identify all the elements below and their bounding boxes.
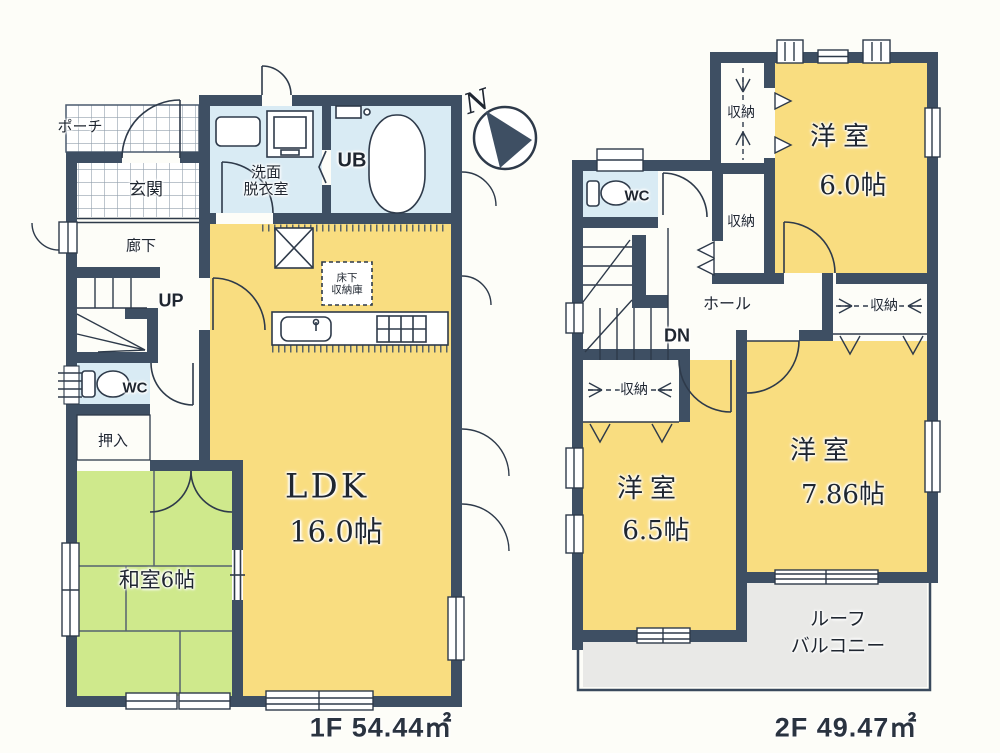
bedroom2-name-label: 洋室	[790, 437, 856, 467]
ldk-size-label: 16.0帖	[289, 515, 383, 548]
bedroom2-size-label: 7.86帖	[801, 481, 885, 511]
bedroom1-name-label: 洋室	[810, 123, 876, 153]
oshiire-label: 押入	[98, 432, 128, 449]
stairs-up-label: UP	[158, 291, 183, 312]
japanese-room-label: 和室6帖	[119, 568, 195, 592]
toilet-2f-label: WC	[625, 187, 650, 204]
washroom-label-line2: 脱衣室	[243, 181, 288, 198]
entrance-label: 玄関	[129, 181, 163, 201]
storage-north-upper-label: 収納	[727, 105, 755, 121]
roof-balcony-line1: ルーフ	[791, 606, 886, 633]
underfloor-storage-line1: 床下	[331, 272, 363, 284]
washroom-label: 洗面 脱衣室	[243, 164, 288, 199]
unit-bath-label: UB	[338, 150, 367, 173]
floor1-area-label: 1F 54.44㎡	[310, 712, 453, 743]
storage-bedroom2-label: 収納	[870, 298, 898, 314]
floor2-area-label: 2F 49.47㎡	[775, 712, 918, 743]
corridor-label: 廊下	[126, 237, 156, 254]
storage-bedroom3-label: 収納	[620, 382, 648, 398]
washroom-label-line1: 洗面	[243, 164, 288, 181]
ldk-name-label: LDK	[285, 467, 369, 506]
roof-balcony-line2: バルコニー	[791, 633, 886, 660]
porch-label: ポーチ	[57, 118, 102, 135]
floorplan-canvas: N ポーチ 玄関 廊下 UP WC 押入 和室6帖 洗面 脱衣室 UB 床下 収…	[0, 0, 1000, 753]
bedroom1-size-label: 6.0帖	[819, 172, 886, 202]
storage-north-lower-label: 収納	[727, 214, 755, 230]
underfloor-storage-line2: 収納庫	[331, 284, 363, 296]
roof-balcony-label: ルーフ バルコニー	[791, 606, 886, 660]
floor2-stairs	[583, 228, 668, 360]
underfloor-storage-label: 床下 収納庫	[331, 272, 363, 296]
bedroom3-name-label: 洋室	[617, 475, 683, 505]
stairs-down-label: DN	[664, 326, 690, 347]
bedroom3-size-label: 6.5帖	[622, 517, 689, 547]
toilet-1f-label: WC	[123, 379, 148, 396]
hall-label: ホール	[703, 295, 751, 313]
